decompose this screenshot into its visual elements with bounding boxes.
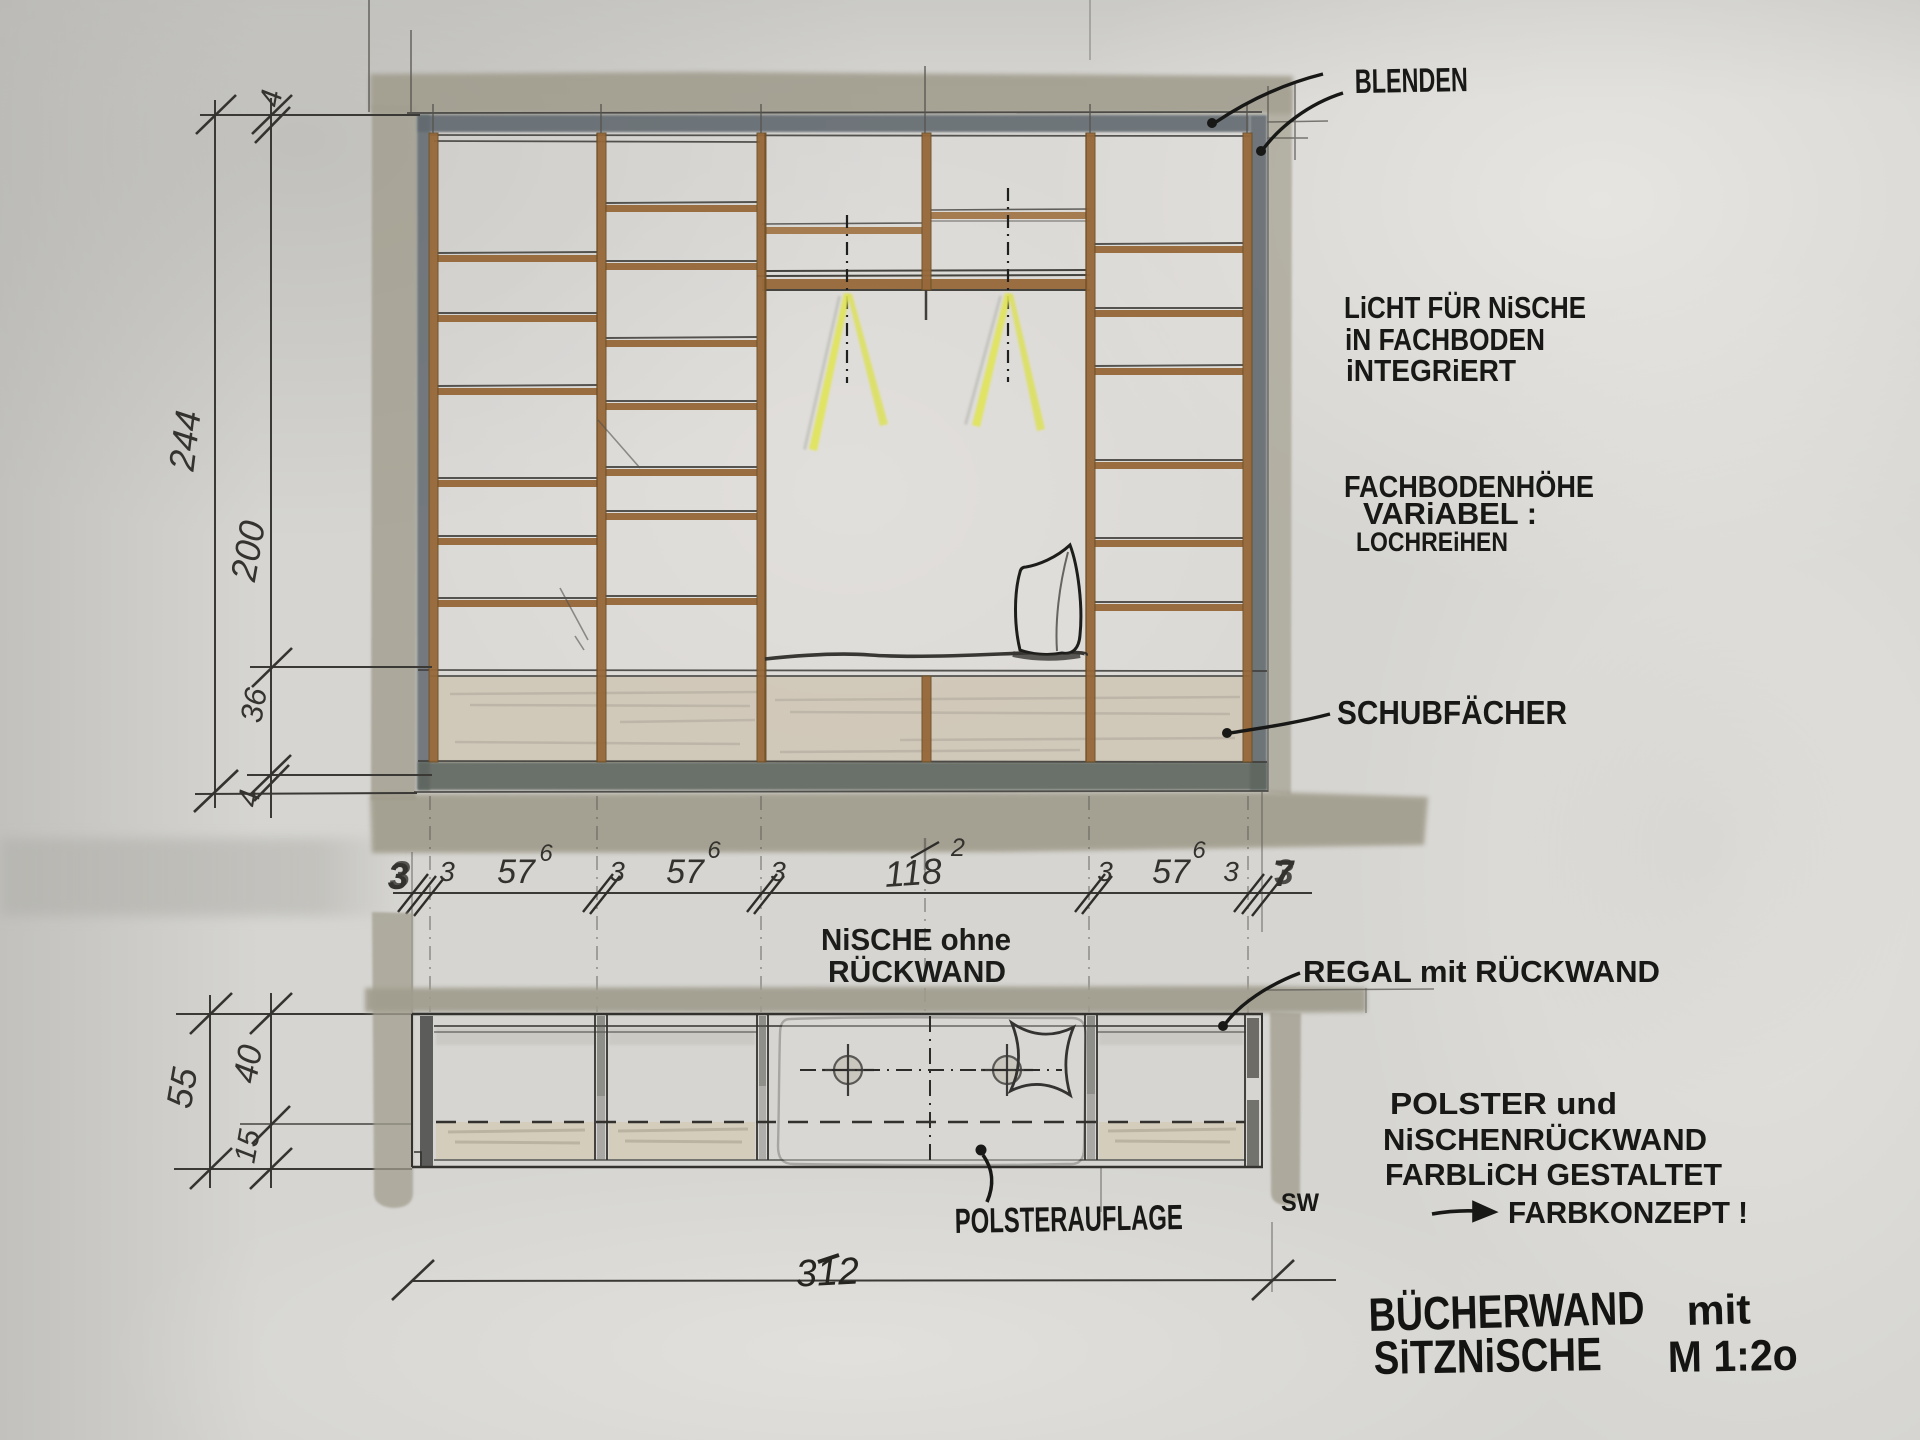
svg-text:3: 3 — [1097, 856, 1113, 887]
svg-text:3: 3 — [1223, 856, 1239, 887]
svg-text:57: 57 — [497, 853, 536, 891]
svg-text:3: 3 — [439, 856, 455, 887]
svg-text:3: 3 — [609, 856, 625, 887]
svg-text:SiTZNiSCHE: SiTZNiSCHE — [1373, 1327, 1602, 1384]
svg-text:55: 55 — [158, 1064, 206, 1112]
svg-text:LiCHT FÜR NiSCHE: LiCHT FÜR NiSCHE — [1344, 290, 1586, 325]
svg-text:NiSCHE ohne: NiSCHE ohne — [821, 922, 1011, 957]
svg-text:2: 2 — [950, 834, 965, 862]
svg-text:REGAL mit RÜCKWAND: REGAL mit RÜCKWAND — [1303, 954, 1660, 989]
svg-text:iN FACHBODEN: iN FACHBODEN — [1345, 322, 1545, 357]
svg-text:SW: SW — [1281, 1189, 1319, 1217]
svg-text:iNTEGRiERT: iNTEGRiERT — [1346, 353, 1516, 388]
svg-text:3: 3 — [770, 856, 786, 887]
svg-text:BLENDEN: BLENDEN — [1354, 61, 1468, 101]
svg-text:SCHUBFÄCHER: SCHUBFÄCHER — [1337, 694, 1567, 731]
svg-text:57: 57 — [1152, 853, 1191, 891]
svg-text:6: 6 — [1192, 837, 1206, 864]
svg-text:M 1:2o: M 1:2o — [1667, 1331, 1798, 1382]
svg-text:3: 3 — [1274, 853, 1294, 892]
svg-text:LOCHREiHEN: LOCHREiHEN — [1356, 527, 1508, 557]
svg-text:6: 6 — [707, 837, 721, 864]
svg-text:36: 36 — [233, 684, 274, 725]
svg-text:57: 57 — [666, 853, 705, 891]
svg-text:FARBKONZEPT !: FARBKONZEPT ! — [1508, 1195, 1748, 1230]
svg-text:118: 118 — [883, 850, 943, 895]
svg-text:NiSCHENRÜCKWAND: NiSCHENRÜCKWAND — [1383, 1122, 1707, 1157]
svg-text:POLSTERAUFLAGE: POLSTERAUFLAGE — [954, 1198, 1183, 1241]
svg-text:RÜCKWAND: RÜCKWAND — [828, 954, 1006, 989]
svg-text:15: 15 — [228, 1127, 266, 1166]
svg-text:244: 244 — [160, 408, 208, 474]
svg-text:3: 3 — [390, 854, 411, 895]
svg-text:FARBLiCH GESTALTET: FARBLiCH GESTALTET — [1385, 1157, 1722, 1192]
svg-text:mit: mit — [1686, 1285, 1751, 1334]
svg-text:VARiABEL :: VARiABEL : — [1363, 496, 1537, 531]
svg-text:6: 6 — [539, 840, 553, 867]
svg-text:POLSTER und: POLSTER und — [1390, 1086, 1617, 1121]
svg-text:40: 40 — [226, 1042, 270, 1086]
